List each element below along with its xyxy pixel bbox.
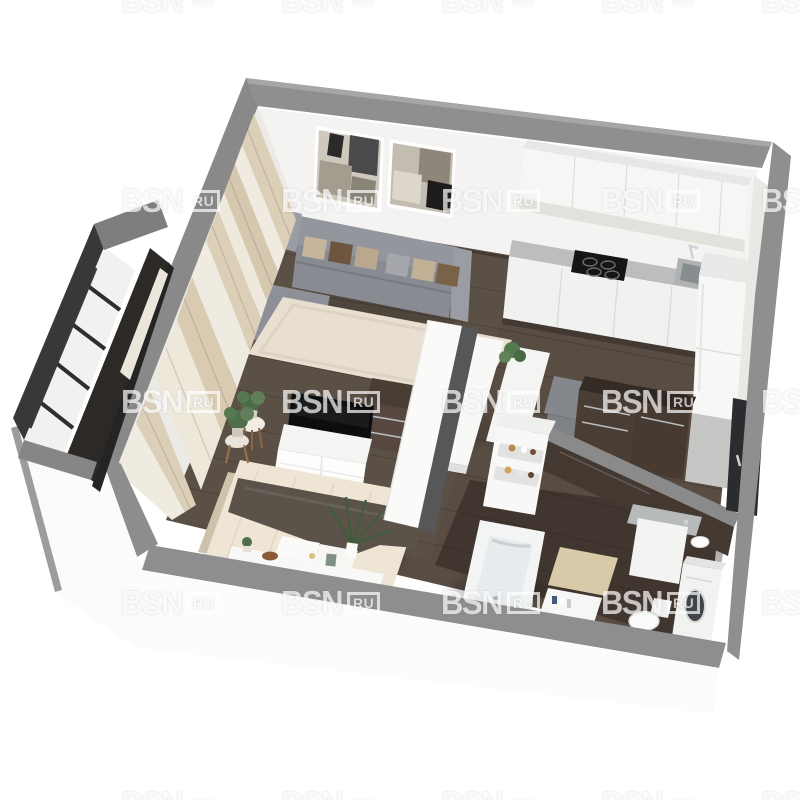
balcony-end-cap <box>94 200 168 250</box>
apartment-3d-render <box>0 0 800 800</box>
vase <box>345 542 358 557</box>
tap <box>684 520 689 525</box>
drain <box>493 596 499 600</box>
washer-door <box>685 590 705 622</box>
floorplan-screenshot: BSN RU BSN RU BSN RU BSN RU BSN RU BSN R… <box>0 0 800 800</box>
